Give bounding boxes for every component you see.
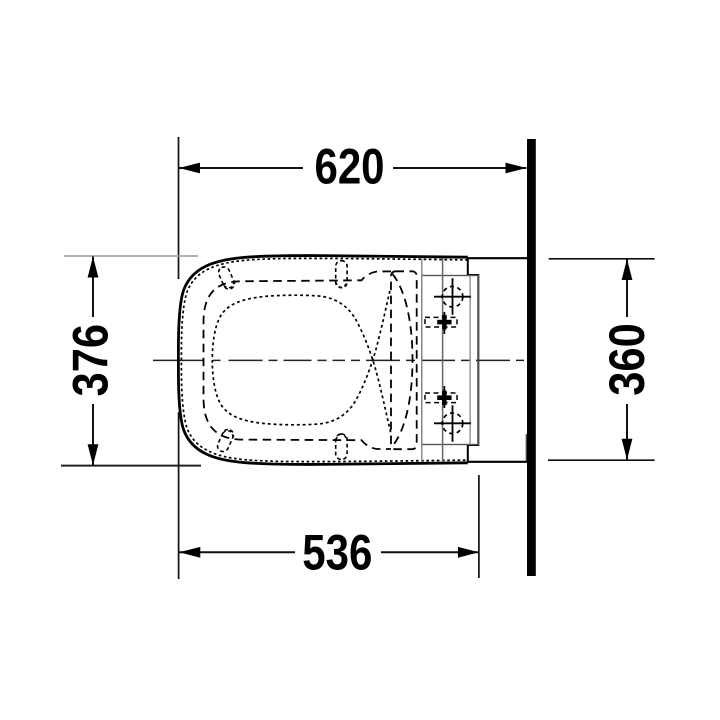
svg-text:376: 376 bbox=[63, 324, 118, 397]
svg-text:536: 536 bbox=[302, 524, 372, 580]
svg-text:360: 360 bbox=[599, 323, 654, 396]
svg-text:620: 620 bbox=[314, 138, 384, 194]
